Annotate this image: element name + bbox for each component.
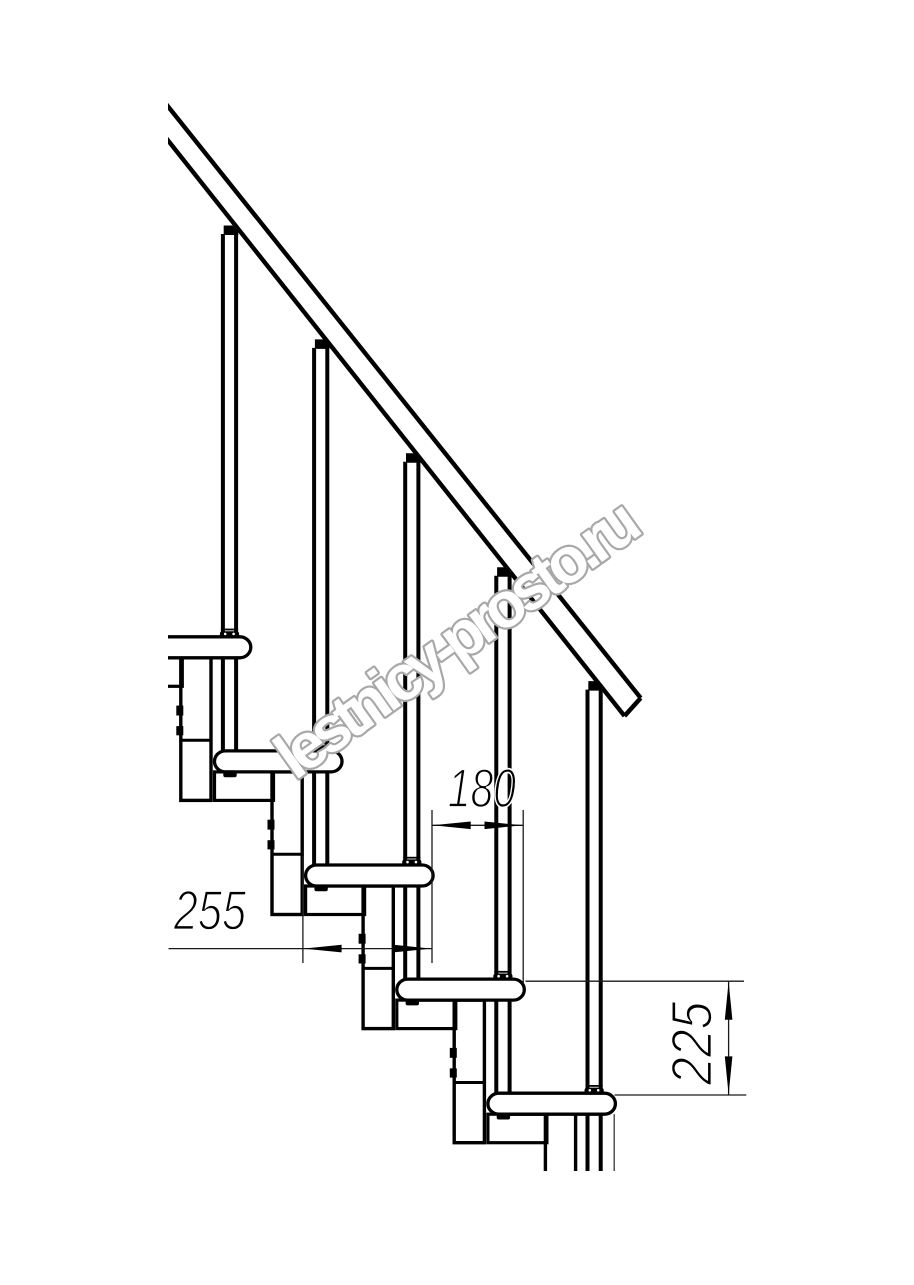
svg-text:255: 255 (173, 880, 246, 942)
svg-text:180: 180 (448, 758, 516, 819)
svg-text:225: 225 (660, 1001, 724, 1086)
